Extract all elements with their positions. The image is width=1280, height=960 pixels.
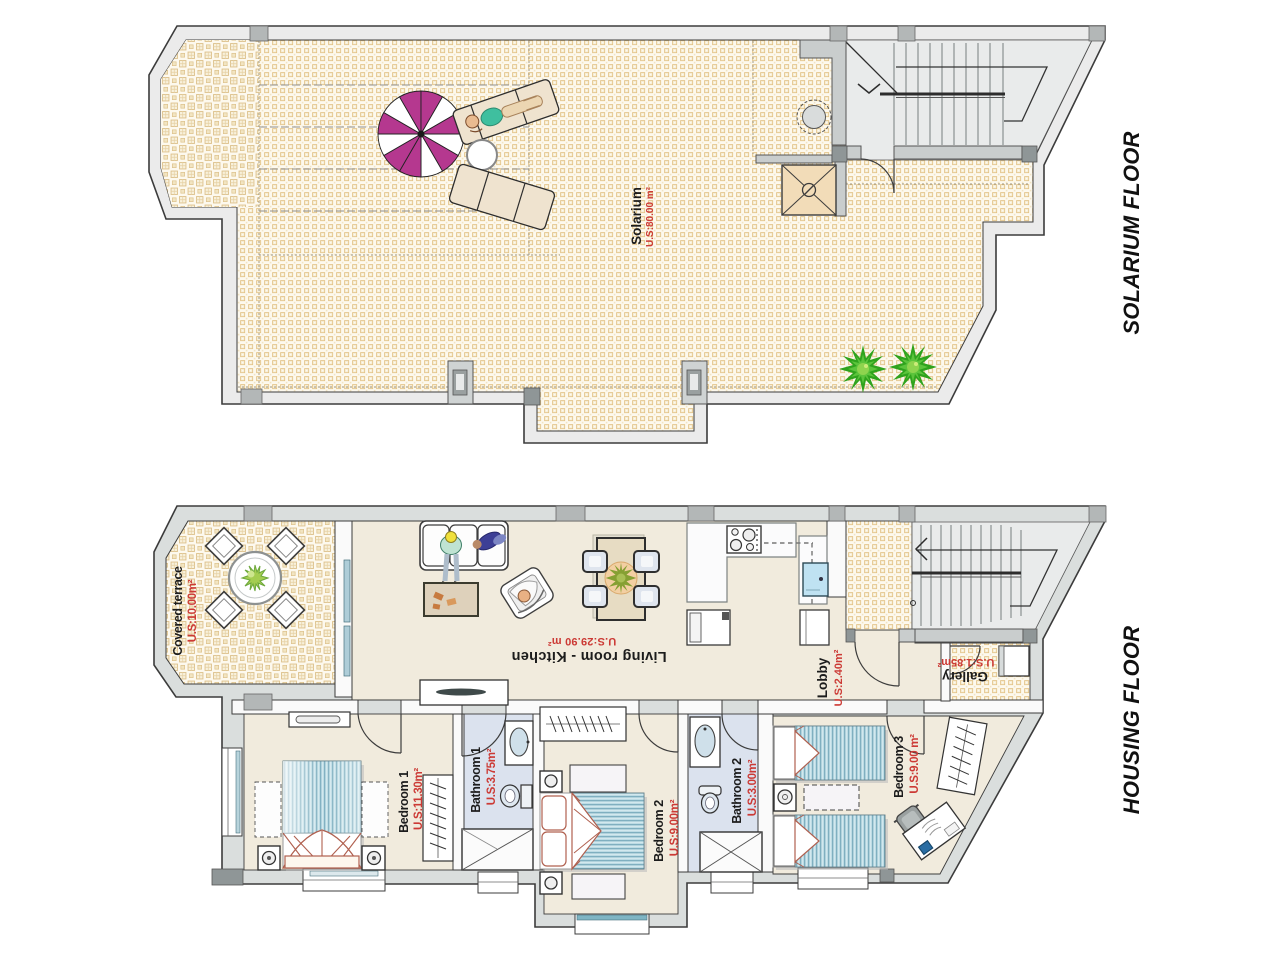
svg-text:Bathroom 2: Bathroom 2 bbox=[730, 758, 744, 824]
svg-text:Bedroom 1: Bedroom 1 bbox=[397, 771, 411, 833]
svg-text:Covered terrace: Covered terrace bbox=[171, 566, 185, 656]
svg-text:SOLARIUM FLOOR: SOLARIUM FLOOR bbox=[1119, 131, 1144, 334]
svg-text:HOUSING FLOOR: HOUSING FLOOR bbox=[1119, 626, 1144, 814]
svg-text:Solarium: Solarium bbox=[629, 187, 644, 245]
svg-text:U.S:2.40m²: U.S:2.40m² bbox=[833, 649, 845, 706]
svg-text:Lobby: Lobby bbox=[815, 657, 830, 698]
svg-text:U.S:9.00 m²: U.S:9.00 m² bbox=[909, 734, 921, 794]
svg-text:U.S:3.75m²: U.S:3.75m² bbox=[486, 748, 498, 805]
svg-text:U.S:1.85m²: U.S:1.85m² bbox=[937, 656, 994, 668]
svg-text:U.S:29.90 m²: U.S:29.90 m² bbox=[548, 635, 617, 647]
svg-text:Bedroom 2: Bedroom 2 bbox=[652, 800, 666, 862]
svg-text:U.S:80.00 m²: U.S:80.00 m² bbox=[645, 186, 656, 247]
svg-text:U.S:10.00m²: U.S:10.00m² bbox=[187, 579, 199, 642]
svg-text:U.S:9.00m²: U.S:9.00m² bbox=[669, 799, 681, 856]
svg-text:Living room - Kitchen: Living room - Kitchen bbox=[511, 648, 666, 664]
svg-text:Bedroom 3: Bedroom 3 bbox=[892, 736, 906, 798]
svg-text:Bathroom 1: Bathroom 1 bbox=[469, 747, 483, 813]
svg-text:Gallery: Gallery bbox=[942, 669, 988, 684]
svg-text:U.S:3.00m²: U.S:3.00m² bbox=[747, 759, 759, 816]
svg-text:U.S:11.30m²: U.S:11.30m² bbox=[413, 768, 425, 830]
